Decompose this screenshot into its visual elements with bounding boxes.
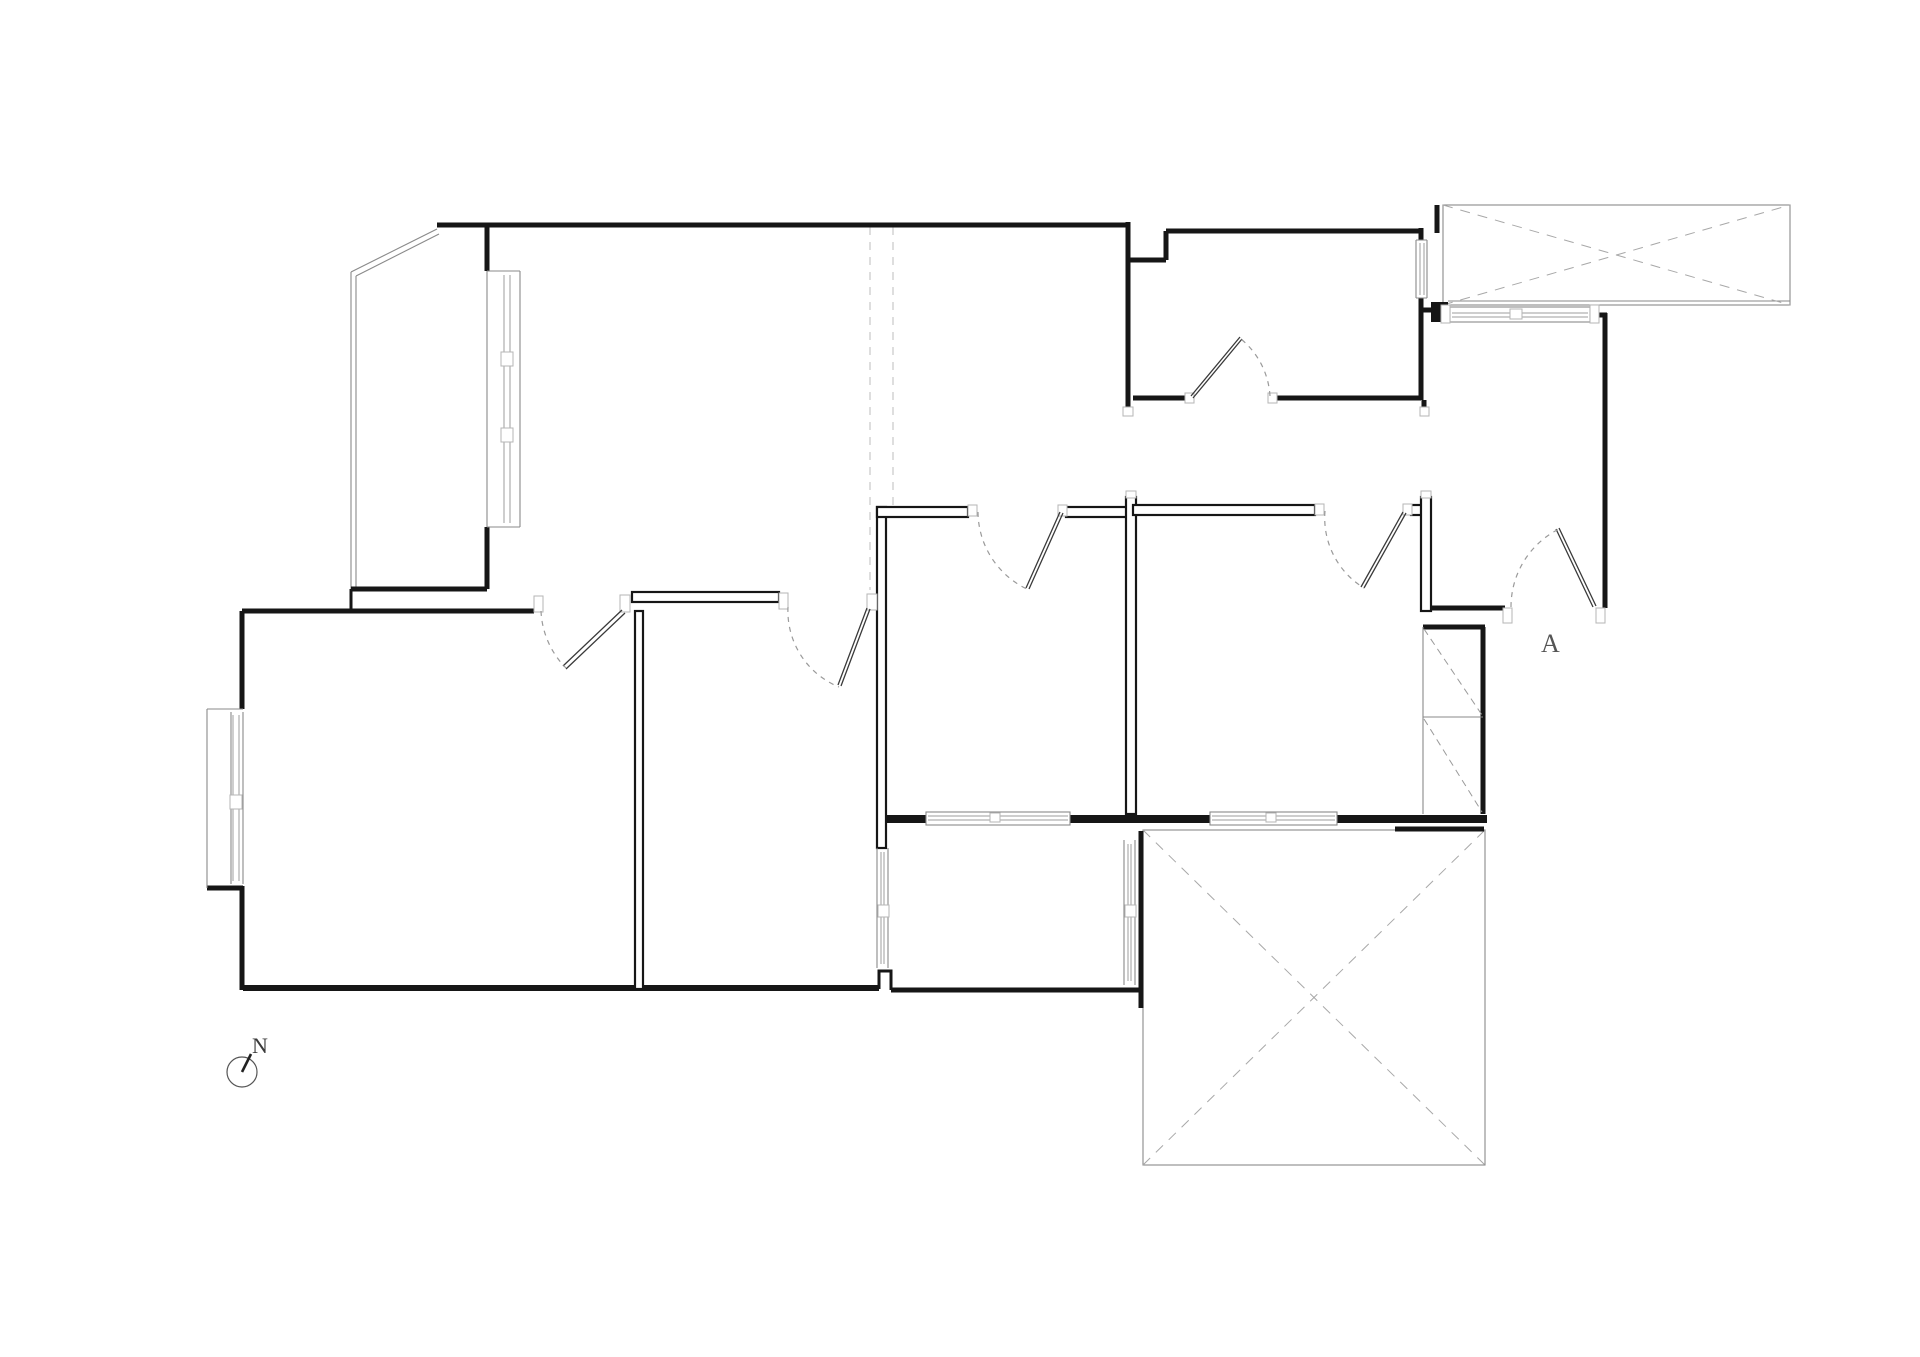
- floor-plan-canvas: N A: [0, 0, 1920, 1357]
- window-lower-left-bay: [207, 709, 243, 888]
- wall-corridor-south: [632, 592, 779, 602]
- door-entry-hall: [1511, 528, 1596, 607]
- wardrobe: [1423, 627, 1483, 814]
- north-label: N: [252, 1033, 268, 1058]
- interior-walls: [632, 497, 1431, 989]
- window-sunroom-west: [877, 848, 889, 968]
- window-west-bay: [487, 271, 520, 527]
- wall-bedroom-divider: [1126, 497, 1136, 814]
- terrace-bottom-right: [1143, 830, 1485, 1165]
- wall-left-bedroom-top-b: [1066, 507, 1128, 517]
- window-slider-hall-top: [1441, 305, 1599, 323]
- window-kitchen-east: [1416, 240, 1427, 298]
- floor-plan-svg: N A: [0, 0, 1920, 1357]
- north-compass: N: [227, 1033, 268, 1087]
- walls: [207, 222, 1607, 1008]
- section-marker-label: A: [1541, 629, 1560, 658]
- wall-left-bedroom-west: [877, 507, 886, 848]
- wall-middle-room-west: [635, 611, 643, 989]
- wall-right-bedroom-east: [1421, 497, 1431, 611]
- wall-right-bedroom-top-a: [1133, 505, 1315, 515]
- door-middle-room: [788, 607, 870, 687]
- balcony-top-left: [351, 229, 439, 589]
- door-right-bedroom: [1325, 511, 1406, 588]
- window-slider-right-bedroom: [1210, 812, 1337, 825]
- door-kitchen: [1191, 337, 1270, 398]
- window-sunroom-east: [1124, 840, 1136, 985]
- window-slider-left-bedroom: [926, 812, 1070, 825]
- balcony-top-right: [1431, 205, 1790, 322]
- wall-left-bedroom-top-a: [877, 507, 968, 517]
- door-left-bedroom: [978, 512, 1063, 590]
- door-lower-left-room: [541, 610, 625, 669]
